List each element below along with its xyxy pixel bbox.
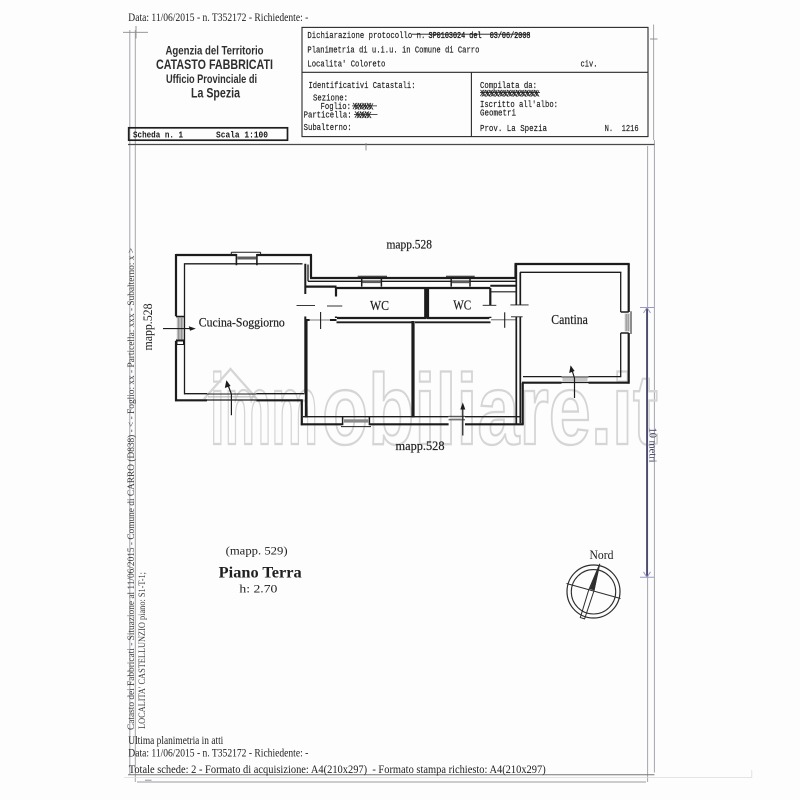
svg-text:obiliare.it: obiliare.it: [322, 354, 658, 466]
svg-text:mapp.528: mapp.528: [387, 236, 433, 251]
svg-text:LOCALITA' CASTELLUNZIO piano:: LOCALITA' CASTELLUNZIO piano: S1-T-1;: [137, 572, 147, 729]
svg-text:Planimetria di u.i.u. in Comun: Planimetria di u.i.u. in Comune di Carro: [307, 44, 479, 55]
svg-text:Cantina: Cantina: [551, 312, 588, 327]
svg-text:Dichiarazione protocollo n.: Dichiarazione protocollo n.: [307, 30, 425, 41]
svg-text:XXX: XXX: [357, 110, 372, 121]
svg-text:10 metri: 10 metri: [647, 428, 659, 463]
svg-text:Ultima planimetria in atti: Ultima planimetria in atti: [128, 735, 223, 747]
svg-text:Piano Terra: Piano Terra: [219, 565, 302, 582]
svg-text:N. 1216: N. 1216: [605, 123, 639, 134]
svg-text:XXXXXXXXXXXXX: XXXXXXXXXXXXX: [482, 88, 540, 99]
svg-text:h: 2.70: h: 2.70: [239, 583, 277, 595]
svg-text:Prov. La Spezia: Prov. La Spezia: [480, 123, 547, 134]
svg-text:Cucina-Soggiorno: Cucina-Soggiorno: [199, 315, 285, 330]
svg-text:civ.: civ.: [581, 58, 598, 69]
svg-text:Particella:: Particella:: [304, 110, 352, 121]
svg-text:WC: WC: [370, 299, 389, 314]
svg-text:Localita' Coloreto: Localita' Coloreto: [307, 58, 385, 69]
svg-text:Scheda n. 1: Scheda n. 1: [133, 130, 183, 141]
svg-text:Catasto dei Fabbricati - Situa: Catasto dei Fabbricati - Situazione al 1…: [126, 248, 136, 730]
svg-text:Subalterno:: Subalterno:: [304, 122, 352, 133]
svg-text:Data: 11/06/2015 - n. T352172: Data: 11/06/2015 - n. T352172 - Richiede…: [128, 12, 308, 24]
svg-text:Scala 1:100: Scala 1:100: [216, 130, 268, 141]
svg-text:WC: WC: [453, 299, 471, 314]
svg-text:SP0103024 del 03/06/2008: SP0103024 del 03/06/2008: [429, 30, 531, 41]
svg-text:CATASTO FABBRICATI: CATASTO FABBRICATI: [156, 56, 273, 72]
svg-text:Geometri: Geometri: [480, 108, 516, 119]
svg-text:mapp.528: mapp.528: [396, 438, 445, 453]
svg-text:Nord: Nord: [590, 548, 615, 562]
svg-text:Data: 11/06/2015 - n. T352172: Data: 11/06/2015 - n. T352172 - Richiede…: [128, 748, 308, 760]
svg-text:La Spezia: La Spezia: [191, 85, 240, 101]
svg-text:mapp.528: mapp.528: [140, 304, 155, 351]
svg-text:(mapp. 529): (mapp. 529): [226, 544, 288, 558]
svg-text:Totale schede: 2 - Formato di: Totale schede: 2 - Formato di acquisizio…: [129, 764, 546, 776]
svg-text:Identificativi Catastali:: Identificativi Catastali:: [309, 80, 416, 91]
